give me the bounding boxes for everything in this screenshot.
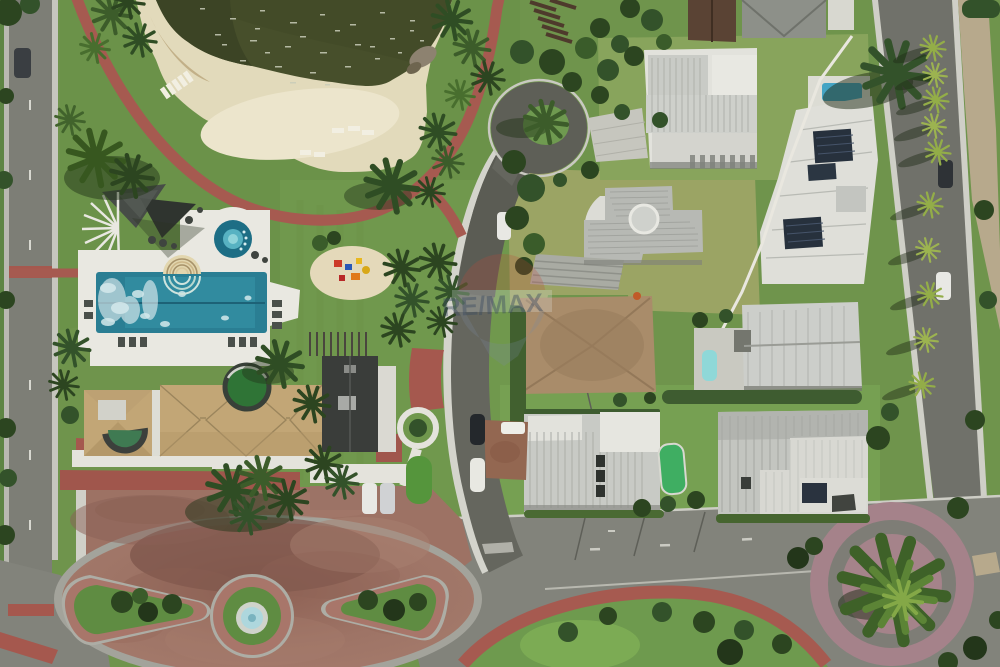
svg-text:RE/MAX: RE/MAX	[441, 287, 544, 322]
